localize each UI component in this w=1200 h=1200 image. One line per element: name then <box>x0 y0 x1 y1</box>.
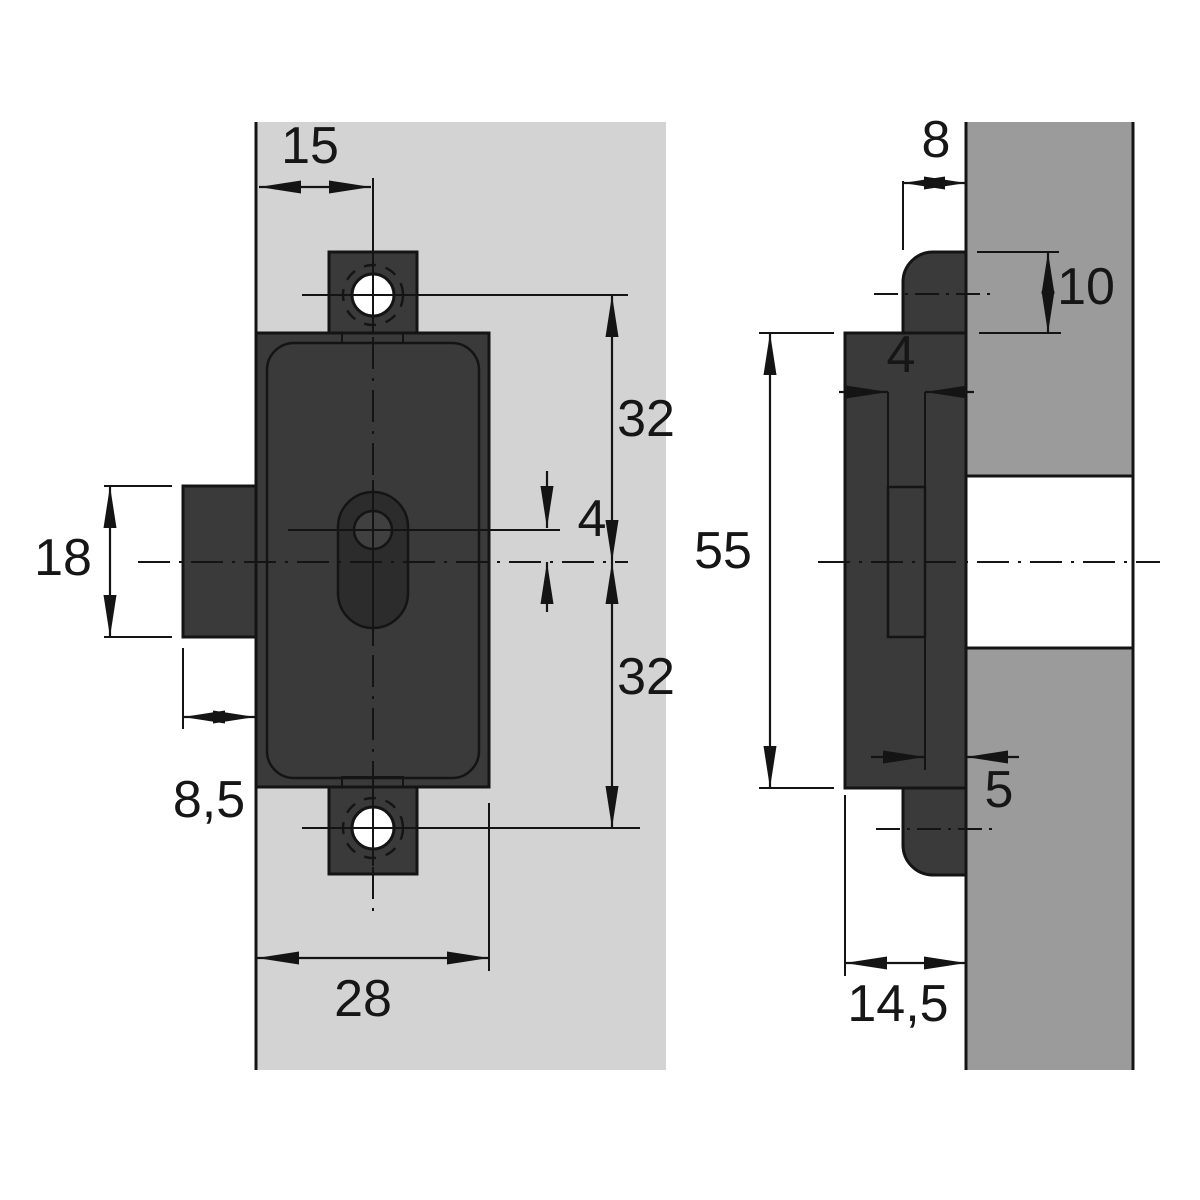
dimension-label: 8 <box>922 111 951 169</box>
dimension-8: 8 <box>903 111 966 250</box>
dimension-55: 55 <box>694 333 834 788</box>
dimension-label: 5 <box>985 761 1014 819</box>
dimension-label: 10 <box>1057 258 1115 316</box>
dimension-8-5: 8,5 <box>173 648 255 829</box>
dimension-label: 32 <box>617 648 675 706</box>
drawing-canvas: 15 32 4 32 18 8,5 <box>0 0 1200 1200</box>
dimension-label: 14,5 <box>847 975 948 1033</box>
dimension-label: 18 <box>34 529 92 587</box>
dimension-label: 15 <box>281 117 339 175</box>
dimension-label: 4 <box>887 326 916 384</box>
dimension-label: 55 <box>694 522 752 580</box>
dimension-label: 32 <box>617 390 675 448</box>
dimension-label: 4 <box>578 490 607 548</box>
dimension-label: 8,5 <box>173 771 245 829</box>
dimension-drawing: 15 32 4 32 18 8,5 <box>0 0 1200 1200</box>
side-view: 8 10 4 55 5 <box>694 111 1160 1070</box>
lock-case-side <box>845 333 966 788</box>
front-view: 15 32 4 32 18 8,5 <box>34 117 675 1070</box>
dimension-label: 28 <box>334 970 392 1028</box>
